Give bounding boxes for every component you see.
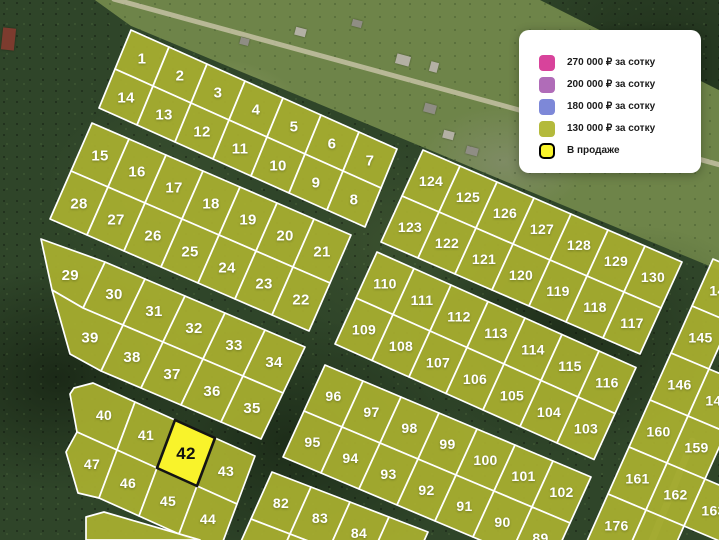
plot-number-16: 16: [128, 163, 145, 180]
plot-number-96: 96: [325, 388, 341, 404]
plot-number-95: 95: [304, 434, 320, 450]
plot-number-121: 121: [472, 251, 496, 267]
legend-item-4: В продаже: [539, 143, 691, 159]
plot-number-24: 24: [218, 259, 236, 276]
plot-number-163: 163: [701, 503, 719, 519]
plot-number-128: 128: [567, 237, 591, 253]
legend-color-swatch-icon: [539, 143, 555, 159]
plot-number-94: 94: [342, 450, 358, 466]
plot-number-97: 97: [363, 404, 379, 420]
plot-number-45: 45: [160, 493, 176, 509]
plot-number-115: 115: [558, 358, 582, 374]
plot-number-83: 83: [312, 510, 328, 526]
plot-number-3: 3: [214, 84, 223, 101]
plot-number-107: 107: [426, 354, 450, 370]
plot-number-36: 36: [203, 383, 220, 400]
plot-number-176: 176: [604, 518, 628, 534]
plot-number-113: 113: [484, 325, 508, 341]
plot-number-103: 103: [574, 420, 598, 436]
plot-number-112: 112: [447, 308, 471, 324]
plot-number-119: 119: [546, 283, 570, 299]
plot-number-116: 116: [595, 374, 619, 390]
plot-number-110: 110: [373, 275, 397, 291]
plot-number-100: 100: [473, 452, 497, 468]
plot-number-7: 7: [366, 152, 375, 169]
plot-number-118: 118: [583, 299, 607, 315]
plot-number-44: 44: [200, 511, 216, 527]
plot-number-127: 127: [530, 221, 554, 237]
plot-number-9: 9: [312, 174, 321, 191]
plot-number-21: 21: [313, 243, 330, 260]
legend-item-label: 130 000 ₽ за сотку: [567, 124, 655, 134]
plot-number-4: 4: [252, 101, 261, 118]
plot-number-114: 114: [521, 341, 545, 357]
plot-number-1: 1: [138, 50, 147, 67]
plot-number-18: 18: [202, 195, 219, 212]
plot-number-37: 37: [163, 366, 180, 383]
plot-number-14: 14: [117, 89, 135, 106]
plot-number-120: 120: [509, 267, 533, 283]
plot-number-106: 106: [463, 371, 487, 387]
plot-number-20: 20: [276, 227, 293, 244]
plot-number-161: 161: [625, 471, 649, 487]
land-plot-map: 1234567141312111098151617181920212827262…: [0, 0, 719, 540]
plot-number-35: 35: [243, 400, 260, 417]
plot-number-117: 117: [620, 315, 644, 331]
plot-number-30: 30: [105, 286, 122, 303]
plot-number-23: 23: [255, 275, 272, 292]
plot-number-130: 130: [641, 269, 665, 285]
plot-number-99: 99: [439, 436, 455, 452]
plot-number-25: 25: [181, 243, 198, 260]
plot-number-93: 93: [380, 466, 396, 482]
plot-number-2: 2: [176, 67, 185, 84]
plot-number-46: 46: [120, 475, 136, 491]
plot-number-43: 43: [218, 463, 234, 479]
legend-item-label: В продаже: [567, 146, 620, 156]
plot-number-6: 6: [328, 135, 337, 152]
plot-number-34: 34: [265, 354, 283, 371]
plot-number-144: 144: [709, 283, 719, 299]
plot-number-124: 124: [419, 173, 443, 189]
plot-number-11: 11: [232, 140, 248, 157]
plot-number-104: 104: [537, 404, 561, 420]
legend-color-swatch-icon: [539, 77, 555, 93]
plot-number-19: 19: [239, 211, 256, 228]
map-legend: 270 000 ₽ за сотку200 000 ₽ за сотку180 …: [519, 30, 701, 173]
plot-number-126: 126: [493, 205, 517, 221]
plot-number-123: 123: [398, 219, 422, 235]
plot-number-146: 146: [667, 377, 691, 393]
legend-item-label: 180 000 ₽ за сотку: [567, 102, 655, 112]
legend-item-label: 200 000 ₽ за сотку: [567, 80, 655, 90]
plot-number-17: 17: [165, 179, 182, 196]
legend-color-swatch-icon: [539, 99, 555, 115]
plot-number-147: 147: [705, 393, 719, 409]
plot-number-159: 159: [684, 440, 708, 456]
plot-number-28: 28: [70, 195, 87, 212]
plot-number-84: 84: [351, 525, 367, 540]
plot-number-108: 108: [389, 338, 413, 354]
legend-color-swatch-icon: [539, 55, 555, 71]
plot-number-105: 105: [500, 387, 524, 403]
plot-number-125: 125: [456, 189, 480, 205]
plot-number-42: 42: [176, 444, 196, 463]
plot-number-109: 109: [352, 321, 376, 337]
plot-number-102: 102: [549, 484, 573, 500]
plot-number-22: 22: [292, 291, 309, 308]
legend-item-0: 270 000 ₽ за сотку: [539, 55, 691, 71]
plot-number-40: 40: [96, 407, 112, 423]
plot-number-122: 122: [435, 235, 459, 251]
plot-number-92: 92: [418, 482, 434, 498]
plot-number-26: 26: [144, 227, 161, 244]
legend-item-2: 180 000 ₽ за сотку: [539, 99, 691, 115]
legend-item-label: 270 000 ₽ за сотку: [567, 58, 655, 68]
plot-number-82: 82: [273, 495, 289, 511]
plot-number-12: 12: [193, 123, 210, 140]
plot-number-29: 29: [62, 267, 79, 284]
plot-number-32: 32: [185, 320, 202, 337]
plot-number-8: 8: [350, 191, 359, 208]
plot-number-5: 5: [290, 118, 299, 135]
plot-number-89: 89: [532, 530, 548, 540]
plot-number-91: 91: [456, 498, 472, 514]
plot-number-129: 129: [604, 253, 628, 269]
plot-number-90: 90: [494, 514, 510, 530]
plot-number-10: 10: [269, 157, 286, 174]
plot-number-15: 15: [91, 147, 108, 164]
legend-item-3: 130 000 ₽ за сотку: [539, 121, 691, 137]
plot-number-145: 145: [688, 330, 712, 346]
plot-number-31: 31: [145, 303, 162, 320]
plot-number-47: 47: [84, 456, 100, 472]
plot-number-38: 38: [123, 349, 140, 366]
plot-number-39: 39: [81, 329, 98, 346]
plot-number-162: 162: [663, 487, 687, 503]
plot-number-27: 27: [107, 211, 124, 228]
plot-number-160: 160: [646, 424, 670, 440]
plot-number-13: 13: [155, 106, 172, 123]
plot-number-41: 41: [138, 427, 154, 443]
plot-number-101: 101: [511, 468, 535, 484]
plot-number-98: 98: [401, 420, 417, 436]
plot-number-33: 33: [225, 337, 242, 354]
legend-color-swatch-icon: [539, 121, 555, 137]
legend-item-1: 200 000 ₽ за сотку: [539, 77, 691, 93]
plot-number-111: 111: [411, 292, 434, 308]
